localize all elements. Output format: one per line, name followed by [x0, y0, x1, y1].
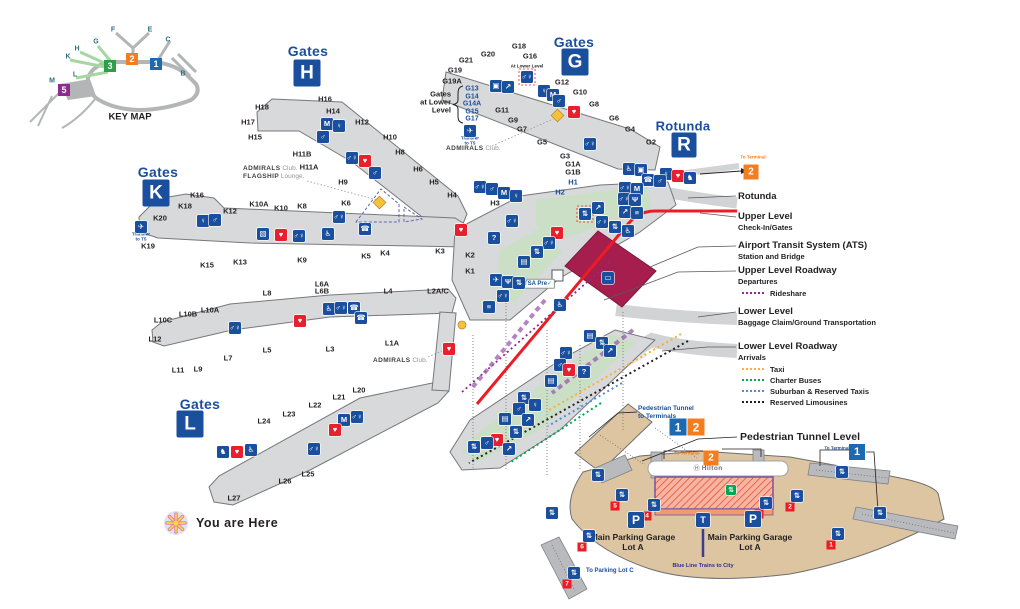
legend-route-charter-buses: Charter Buses [742, 376, 1008, 385]
tsa-pre-label: TSA Pre✓ [521, 279, 555, 289]
route-label: Taxi [770, 365, 784, 374]
legend-route-reserved-limousines: Reserved Limousines [742, 398, 1008, 407]
gate-label-g1b: G1B [565, 168, 580, 176]
legend-item-lower-level-roadway: Lower Level RoadwayArrivalsTaxiCharter B… [738, 342, 1008, 407]
gate-label-g12: G12 [555, 78, 569, 86]
you-are-here-label: You are Here [196, 516, 278, 530]
elevator-icon: ⇅ [874, 507, 886, 519]
rotunda-letter: R [672, 133, 697, 158]
keymap-letter-l: L [73, 72, 77, 79]
gate-label-g2: G2 [646, 138, 656, 146]
aed-icon: ♥ [443, 343, 455, 355]
legend-item-rotunda: Rotunda [738, 192, 1008, 203]
gate-label-h4: H4 [447, 191, 457, 199]
tunnel-terminal-1-box: 1 [670, 419, 687, 436]
gate-label-g16: G16 [523, 52, 537, 60]
mens-restroom-icon: ♂ [654, 175, 666, 187]
lower-level-gate-g15: G15 [465, 108, 478, 115]
womens-restroom-icon: ♀ [510, 190, 522, 202]
restroom-icon: ♂♀ [308, 443, 320, 455]
lower-level-gate-g17: G17 [465, 116, 478, 123]
gate-label-g4: G4 [625, 125, 635, 133]
gate-label-l24: L24 [258, 417, 271, 425]
mens-restroom-icon: ♂ [369, 167, 381, 179]
elevator-icon: ⇅ [513, 277, 525, 289]
route-dots-swatch [742, 401, 764, 403]
restroom-icon: ♂♀ [521, 71, 533, 83]
gate-label-k12: K12 [223, 207, 237, 215]
hilton-logo-icon: Ⓗ [693, 465, 700, 472]
elevator-icon: ⇅ [510, 426, 522, 438]
gate-label-g18: G18 [512, 42, 526, 50]
family-restroom-icon: ♂♀ [596, 216, 608, 228]
restroom-icon: ♂♀ [497, 290, 509, 302]
elevator-icon: ⇅ [791, 490, 803, 502]
escalator-icon: ↗ [604, 345, 616, 357]
legend-title: Rotunda [738, 192, 1008, 203]
gate-label-h11a: H11A [300, 163, 319, 171]
elevator-number-badge: 1 [827, 541, 836, 550]
gate-label-l10b: L10B [179, 310, 197, 318]
legend-route-suburban-reserved-taxis: Suburban & Reserved Taxis [742, 387, 1008, 396]
gate-label-l8: L8 [263, 289, 272, 297]
hilton-label: Ⓗ Hilton [693, 465, 722, 473]
gate-label-l10c: L10C [154, 316, 172, 324]
nursing-room-icon: M [498, 187, 510, 199]
keymap-caption: KEY MAP [108, 112, 151, 123]
restroom-icon: ♂♀ [506, 215, 518, 227]
legend-item-upper-level-roadway: Upper Level RoadwayDeparturesRideshare [738, 266, 1008, 298]
elevator-number-badge: 5 [611, 502, 620, 511]
gate-label-g11: G11 [495, 106, 509, 114]
elevator-icon: ⇅ [592, 469, 604, 481]
legend-title: Upper Level [738, 212, 1008, 223]
gate-label-g6: G6 [609, 114, 619, 122]
elevator-icon: ⇅ [836, 466, 848, 478]
gate-label-l12: L12 [149, 335, 162, 343]
gate-label-k13: K13 [233, 258, 247, 266]
gate-label-g20: G20 [481, 50, 495, 58]
elevator-number-badge: 6 [578, 543, 587, 552]
legend-title: Lower Level Roadway [738, 342, 1008, 353]
restroom-icon: ♂♀ [293, 230, 305, 242]
elevator-icon: ⇅ [546, 507, 558, 519]
gate-label-h16: H16 [318, 95, 332, 103]
gate-label-l1a: L1A [385, 339, 399, 347]
escalator-icon: ↗ [522, 414, 534, 426]
gate-label-h9: H9 [338, 178, 348, 186]
terminal-3-map: Gates H Gates G Gates K Gates L Rotunda … [0, 0, 1020, 609]
aed-icon: ♥ [294, 315, 306, 327]
gate-label-k8: K8 [297, 202, 307, 210]
escalator-icon: ↗ [502, 81, 514, 93]
pet-relief-icon: ♞ [217, 446, 229, 458]
gate-label-h8: H8 [395, 148, 405, 156]
terminal-2-box-parking: 2 [704, 451, 719, 466]
phone-icon: ☎ [355, 312, 367, 324]
accessible-icon: ♿ [322, 228, 334, 240]
route-dots-swatch [742, 379, 764, 381]
baggage-claim-icon: ▤ [518, 256, 530, 268]
womens-restroom-icon: ♀ [529, 399, 541, 411]
keymap-terminal-3: 3 [104, 60, 116, 72]
aed-icon: ♥ [672, 170, 684, 182]
info-icon: ? [488, 232, 500, 244]
keymap-terminal-2: 2 [126, 53, 138, 65]
escalator-icon: ↗ [592, 202, 604, 214]
elevator-icon: ⇅ [531, 246, 543, 258]
stairs-icon: ≡ [631, 207, 643, 219]
legend-route-taxi: Taxi [742, 365, 1008, 374]
gates-k-letter: K [143, 180, 170, 207]
to-parking-lot-c-label: To Parking Lot C [586, 568, 634, 576]
legend-title: Lower Level [738, 307, 1008, 318]
route-label: Rideshare [770, 289, 806, 298]
mens-restroom-icon: ♂ [209, 214, 221, 226]
lower-level-gate-g14: G14 [465, 93, 478, 100]
gate-label-g9: G9 [508, 116, 518, 124]
transfer-to-t5-icon: ✈ [135, 221, 147, 233]
aed-icon: ♥ [455, 224, 467, 236]
gate-label-l3: L3 [326, 345, 335, 353]
workstation-icon: ▧ [257, 228, 269, 240]
gate-label-l5: L5 [263, 346, 272, 354]
gate-label-h15: H15 [248, 133, 262, 141]
gate-label-k9: K9 [297, 256, 307, 264]
gate-label-l22: L22 [309, 401, 322, 409]
transfer-to-t5-icon: ✈ [464, 125, 476, 137]
route-label: Reserved Limousines [770, 398, 848, 407]
gate-label-l4: L4 [384, 287, 393, 295]
womens-restroom-icon: ♀ [333, 120, 345, 132]
admirals-flagship-label: ADMIRALS Club. FLAGSHIP Lounge. [243, 165, 304, 182]
legend-title: Airport Transit System (ATS) [738, 241, 1008, 252]
nursing-room-icon: M [321, 118, 333, 130]
transfer-caption-g: Transfer to T5 [461, 136, 479, 147]
gate-label-l27: L27 [228, 494, 241, 502]
restroom-icon: ♂♀ [346, 152, 358, 164]
transfer-to-t5-icon: ✈ [490, 274, 502, 286]
mens-restroom-icon: ♂ [481, 437, 493, 449]
pedestrian-tunnel-level-label: Pedestrian Tunnel Level [740, 431, 860, 443]
gate-label-l9: L9 [194, 365, 203, 373]
legend-item-upper-level: Upper LevelCheck-In/Gates [738, 212, 1008, 233]
dining-icon: Ψ [629, 194, 641, 206]
elevator-icon: ⇅ [583, 530, 595, 542]
aed-icon: ♥ [359, 155, 371, 167]
tsa-check-icon: ✓ [547, 281, 552, 287]
elevator-number-badge: 7 [563, 580, 572, 589]
gate-label-l11: L11 [172, 366, 185, 374]
route-dots-swatch [742, 368, 764, 370]
elevator-number-badge: 2 [786, 503, 795, 512]
keymap-terminal-5: 5 [58, 84, 70, 96]
gate-label-h10: H10 [383, 133, 397, 141]
gate-label-g19a: G19A [442, 77, 462, 85]
gate-label-g10: G10 [573, 88, 587, 96]
elevator-icon: ⇅ [579, 208, 591, 220]
escalator-icon: ↗ [619, 206, 631, 218]
gates-g-letter: G [562, 49, 589, 76]
gate-label-l10a: L10A [201, 306, 219, 314]
gate-label-k3: K3 [435, 247, 445, 255]
restroom-icon: ♂♀ [584, 138, 596, 150]
gate-label-k10a: K10A [249, 200, 268, 208]
gate-label-h18: H18 [255, 103, 269, 111]
elevator-icon: ⇅ [616, 489, 628, 501]
gate-label-h2: H2 [555, 188, 565, 196]
aed-icon: ♥ [231, 446, 243, 458]
legend-item-airport-transit-system-ats-: Airport Transit System (ATS)Station and … [738, 241, 1008, 262]
elevator-icon: ⇅ [468, 441, 480, 453]
admirals-club-label-l: ADMIRALS Club. [373, 357, 428, 365]
lower-level-gate-g13: G13 [465, 86, 478, 93]
mens-restroom-icon: ♂ [486, 183, 498, 195]
gate-label-l21: L21 [333, 393, 346, 401]
ats-bus-icon: ▭ [602, 272, 614, 284]
mens-restroom-icon: ♂ [553, 95, 565, 107]
aed-icon: ♥ [563, 364, 575, 376]
gate-label-k5: K5 [361, 252, 371, 260]
restroom-icon: ♂♀ [543, 237, 555, 249]
legend-subtitle: Check-In/Gates [738, 223, 1008, 233]
escalator-icon: ↗ [503, 443, 515, 455]
terminal-1-box-parking: 1 [849, 444, 865, 460]
keymap-letter-h: H [74, 46, 79, 53]
to-terminal-label-legend: To Terminal [740, 154, 765, 159]
aed-icon: ♥ [275, 229, 287, 241]
pet-relief-icon: ♞ [684, 172, 696, 184]
phone-icon: ☎ [359, 223, 371, 235]
route-dots-swatch [742, 292, 764, 294]
aed-icon: ♥ [568, 106, 580, 118]
keymap-letter-b: B [180, 71, 185, 78]
baggage-claim-icon: ▤ [584, 330, 596, 342]
legend-route-rideshare: Rideshare [742, 289, 1008, 298]
gate-label-g8: G8 [589, 100, 599, 108]
gate-label-k1: K1 [465, 267, 475, 275]
legend-subtitle: Station and Bridge [738, 252, 1008, 262]
gate-label-l20: L20 [353, 386, 366, 394]
mens-restroom-icon: ♂ [317, 131, 329, 143]
accessible-icon: ♿ [554, 299, 566, 311]
gates-h-letter: H [294, 60, 321, 87]
elevator-icon: ⇅ [568, 567, 580, 579]
baggage-claim-icon: ▤ [545, 375, 557, 387]
garage-label-west: Main Parking Garage Lot A [591, 532, 676, 552]
gate-label-g5: G5 [537, 138, 547, 146]
gate-label-h11b: H11B [293, 150, 312, 158]
hotel-elevator-icon: ⇅ [726, 485, 736, 495]
to-terminal-2-label: To Terminal [674, 450, 699, 455]
info-icon: ? [578, 366, 590, 378]
gate-label-k15: K15 [200, 261, 214, 269]
blue-line-label: Blue Line Trains to City [672, 563, 733, 569]
elevator-icon: ⇅ [832, 528, 844, 540]
blue-line-train-icon: T [696, 513, 710, 527]
gate-label-h5: H5 [429, 178, 439, 186]
elevator-icon: ⇅ [760, 497, 772, 509]
legend-subtitle: Departures [738, 277, 1008, 287]
keymap-letter-c: C [165, 37, 170, 44]
keymap-letter-m: M [49, 78, 55, 85]
keymap-terminal-1: 1 [150, 58, 162, 70]
gate-label-k16: K16 [190, 191, 204, 199]
keymap-letter-k: K [65, 54, 70, 61]
gate-label-l26: L26 [279, 477, 292, 485]
restroom-icon: ♂♀ [229, 322, 241, 334]
gate-label-k4: K4 [380, 249, 390, 257]
gate-label-l23: L23 [283, 410, 296, 418]
gate-label-h1: H1 [568, 178, 578, 186]
gates-l-letter: L [177, 411, 204, 438]
terminal-2-box-legend: 2 [744, 165, 759, 180]
gate-label-k6: K6 [341, 199, 351, 207]
gates-h-word: Gates [288, 43, 328, 59]
elevator-icon: ⇅ [648, 499, 660, 511]
gate-label-k10: K10 [274, 204, 288, 212]
at-lower-level-caption: At Lower Level [511, 63, 544, 68]
route-label: Suburban & Reserved Taxis [770, 387, 869, 396]
family-restroom-icon: ♂♀ [474, 181, 486, 193]
gate-label-l2a-c: L2A/C [427, 287, 449, 295]
keymap-letter-e: E [148, 27, 153, 34]
restroom-icon: ♂♀ [335, 302, 347, 314]
tunnel-terminal-2-box: 2 [688, 419, 705, 436]
gate-label-l7: L7 [224, 354, 233, 362]
route-dots-swatch [742, 390, 764, 392]
gate-label-g19: G19 [448, 66, 462, 74]
gate-label-l6b: L6B [315, 287, 329, 295]
gate-label-h12: H12 [355, 118, 369, 126]
keymap-letter-g: G [93, 39, 98, 46]
gate-label-h6: H6 [413, 165, 423, 173]
restroom-icon: ♂♀ [333, 211, 345, 223]
gate-label-g7: G7 [517, 125, 527, 133]
baggage-claim-icon: ▤ [499, 413, 511, 425]
lower-level-gates-title: Level [432, 106, 451, 114]
lower-level-gate-g14a: G14A [463, 101, 481, 108]
gate-label-l25: L25 [302, 470, 315, 478]
parking-icon: P [628, 512, 644, 528]
aed-icon: ♥ [329, 424, 341, 436]
gate-label-k20: K20 [153, 214, 167, 222]
accessible-icon: ♿ [622, 225, 634, 237]
stairs-icon: ≡ [483, 301, 495, 313]
to-terminal-1-label: To Terminal [824, 445, 849, 450]
legend-title: Upper Level Roadway [738, 266, 1008, 277]
restroom-icon: ♂♀ [351, 411, 363, 423]
legend-item-lower-level: Lower LevelBaggage Claim/Ground Transpor… [738, 307, 1008, 328]
rotunda-word: Rotunda [656, 119, 711, 134]
womens-restroom-icon: ♀ [197, 215, 209, 227]
restroom-icon: ♂♀ [560, 347, 572, 359]
gate-label-h17: H17 [241, 118, 255, 126]
phone-icon: ☎ [642, 174, 654, 186]
gate-label-k18: K18 [178, 202, 192, 210]
accessible-icon: ♿ [323, 303, 335, 315]
elevator-icon: ⇅ [609, 221, 621, 233]
gate-label-k19: K19 [141, 242, 155, 250]
parking-icon: P [745, 511, 761, 527]
gate-label-g21: G21 [459, 56, 473, 64]
admirals-club-entrance-icon: ▣ [490, 80, 502, 92]
route-label: Charter Buses [770, 376, 821, 385]
gate-label-k2: K2 [465, 251, 475, 259]
accessible-icon: ♿ [245, 444, 257, 456]
garage-label-east: Main Parking Garage Lot A [708, 532, 793, 552]
keymap-letter-f: F [111, 27, 115, 34]
gate-label-h3: H3 [490, 199, 500, 207]
legend-subtitle: Baggage Claim/Ground Transportation [738, 318, 1008, 328]
legend-subtitle: Arrivals [738, 353, 1008, 363]
accessible-icon: ♿ [623, 163, 635, 175]
gates-k-word: Gates [138, 164, 178, 180]
gate-label-h14: H14 [326, 107, 340, 115]
